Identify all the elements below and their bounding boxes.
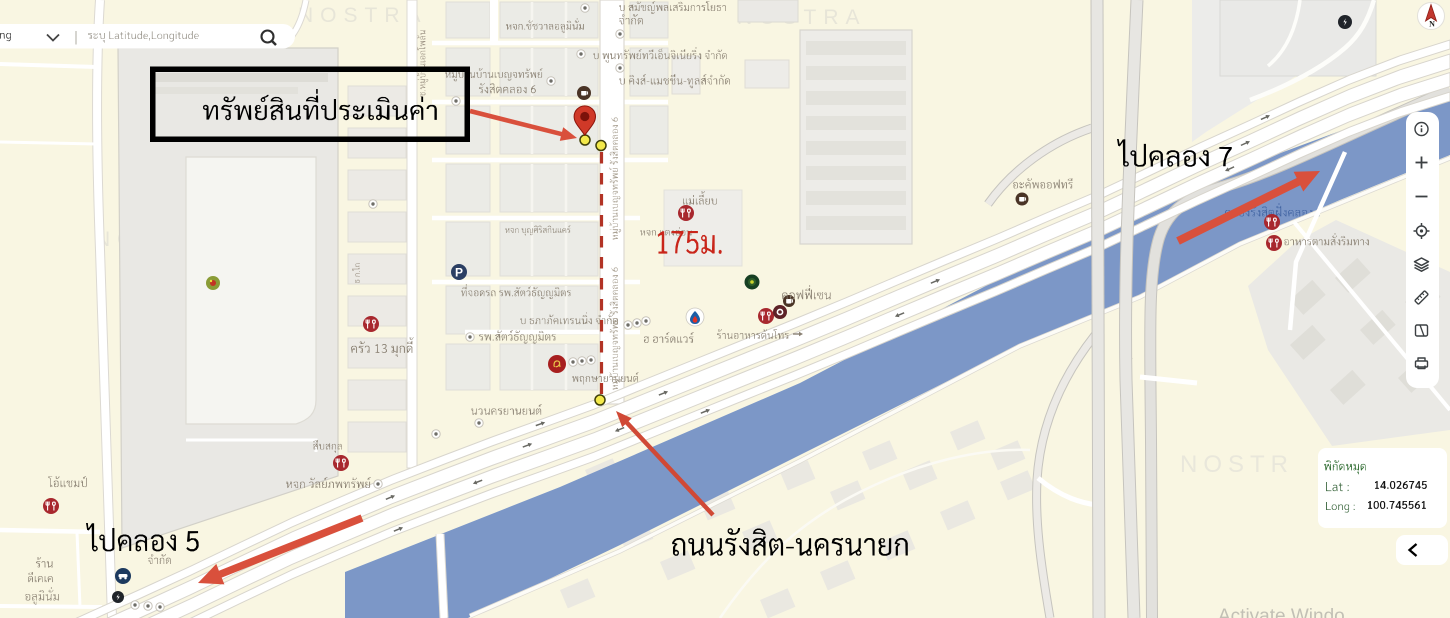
svg-text:N: N (1429, 20, 1435, 29)
svg-text:Activate Windo: Activate Windo (1218, 606, 1345, 618)
svg-text:P: P (455, 266, 463, 280)
svg-text:NOSTR: NOSTR (1180, 451, 1294, 478)
